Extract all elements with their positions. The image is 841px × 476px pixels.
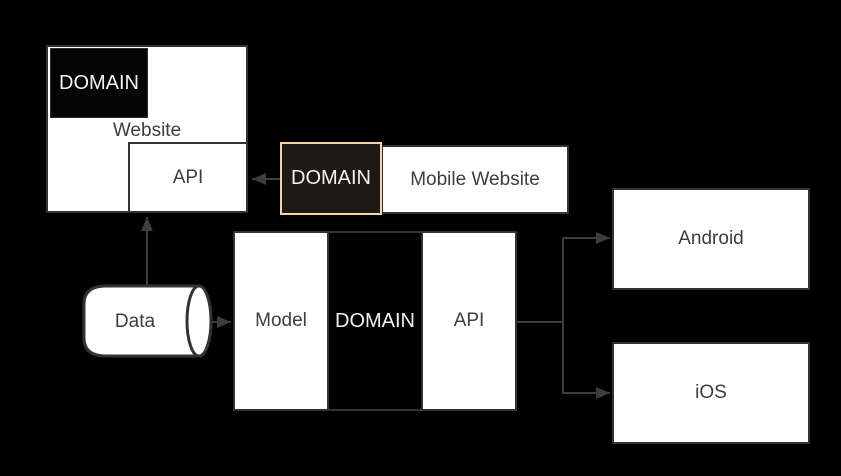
android-node[interactable]: Android [612, 188, 810, 290]
android-label: Android [678, 228, 744, 250]
backend-domain-label: DOMAIN [335, 310, 415, 333]
edge-api-to-ios[interactable] [563, 322, 610, 393]
model-label: Model [255, 310, 307, 332]
mobile-domain-label: DOMAIN [291, 167, 371, 190]
backend-domain-node[interactable]: DOMAIN [327, 233, 421, 409]
ios-label: iOS [695, 382, 727, 404]
backend-group: Model DOMAIN API [233, 231, 517, 411]
data-store-label: Data [85, 311, 185, 333]
edge-api-to-android[interactable] [517, 238, 610, 322]
diagram-canvas: DOMAIN Website API Mobile Website DOMAIN… [0, 0, 841, 476]
mobile-domain-node[interactable]: DOMAIN [280, 142, 382, 215]
ios-node[interactable]: iOS [612, 342, 810, 444]
website-domain-node[interactable]: DOMAIN [50, 48, 148, 118]
mobile-website-label: Mobile Website [410, 169, 540, 191]
website-api-label: API [173, 167, 204, 189]
data-cylinder-cap [187, 286, 211, 356]
backend-api-node[interactable]: API [421, 233, 515, 409]
website-domain-label: DOMAIN [59, 72, 139, 95]
mobile-website-node[interactable]: Mobile Website [381, 145, 569, 214]
backend-api-label: API [454, 310, 485, 332]
website-api-node[interactable]: API [128, 142, 248, 213]
website-label: Website [46, 120, 248, 142]
model-node[interactable]: Model [235, 233, 327, 409]
